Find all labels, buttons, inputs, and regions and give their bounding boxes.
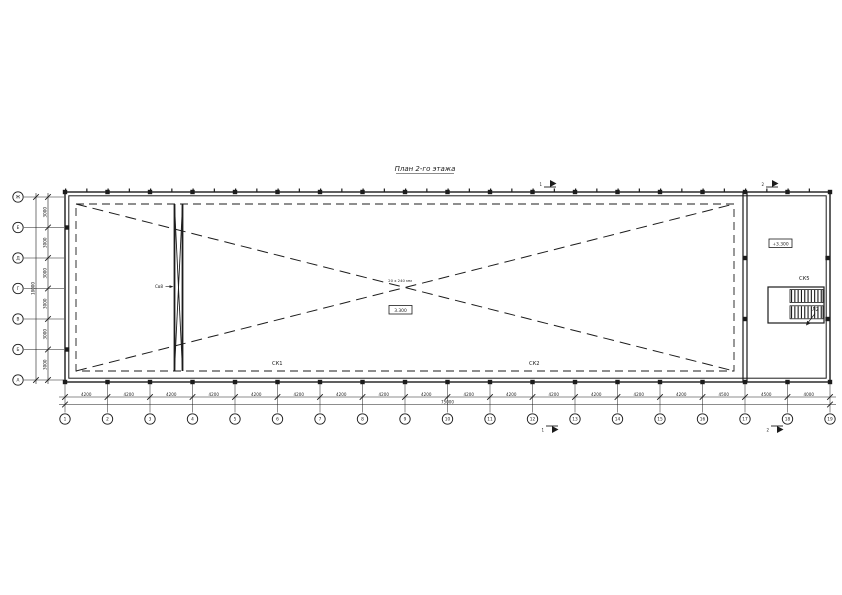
grid-bubble-label: А: [17, 378, 20, 384]
column-mark: [148, 190, 152, 194]
column-mark: [105, 190, 109, 194]
section-marker: 2: [761, 180, 778, 187]
column-mark: [825, 256, 829, 260]
grid-bubble-label: 18: [785, 417, 791, 423]
stair-elevation-value: +3.300: [772, 241, 788, 247]
dim-label: 3000: [43, 237, 48, 248]
dim-label: 3000: [43, 329, 48, 340]
dim-label: 4200: [464, 392, 475, 397]
dim-label: 4200: [166, 392, 177, 397]
grid-bubble-label: 19: [827, 417, 833, 423]
dim-label: 4200: [549, 392, 560, 397]
grid-bubble-label: 7: [319, 417, 322, 423]
dim-label: 4200: [124, 392, 135, 397]
column-mark: [530, 380, 534, 384]
column-mark: [700, 380, 704, 384]
section-marker: 1: [539, 180, 556, 187]
grid-bubble-label: 6: [276, 417, 279, 423]
section-number: 1: [541, 428, 544, 433]
dim-label: 4500: [761, 392, 772, 397]
column-mark: [148, 380, 152, 384]
column-mark: [825, 317, 829, 321]
grid-bubble-label: 15: [657, 417, 663, 423]
dim-label: 4200: [676, 392, 687, 397]
column-mark: [65, 225, 69, 229]
dim-label: 4200: [634, 392, 645, 397]
grid-bubble-label: 10: [445, 417, 451, 423]
column-mark: [318, 190, 322, 194]
column-mark: [190, 190, 194, 194]
grid-bubble-label: 12: [530, 417, 536, 423]
section-number: 2: [766, 428, 769, 433]
column-mark: [63, 380, 67, 384]
column-mark: [318, 380, 322, 384]
drawing-title: План 2-го этажа: [395, 165, 456, 173]
section-flag-icon: [552, 426, 559, 433]
column-mark: [403, 380, 407, 384]
column-mark: [573, 190, 577, 194]
truss-label-ck2: СК2: [529, 361, 540, 367]
center-note: 20 х 240 мм: [388, 278, 412, 283]
grid-bubble-label: 11: [487, 417, 493, 423]
dim-label: 4200: [81, 392, 92, 397]
grid-bubble-label: 17: [742, 417, 748, 423]
dim-label: 3000: [43, 268, 48, 279]
column-mark: [65, 347, 69, 351]
grid-bubble-label: 16: [700, 417, 706, 423]
dim-label: 4500: [719, 392, 730, 397]
column-mark: [743, 190, 747, 194]
column-mark: [573, 380, 577, 384]
column-mark: [360, 190, 364, 194]
dim-label: 4200: [251, 392, 262, 397]
column-mark: [275, 380, 279, 384]
section-number: 2: [761, 182, 764, 187]
drawing-canvas: План 2-го этажа Св8 СК1 СК2 СК5 20 х 240…: [0, 0, 842, 595]
column-mark: [360, 380, 364, 384]
floor-plan-drawing: План 2-го этажа Св8 СК1 СК2 СК5 20 х 240…: [0, 0, 842, 595]
grid-bubble-label: 13: [572, 417, 578, 423]
bottom-grid: 1420024200342004420054200642007420084200…: [60, 190, 835, 424]
column-mark: [658, 190, 662, 194]
section-number: 1: [539, 182, 542, 187]
column-mark: [785, 190, 789, 194]
column-mark: [828, 380, 832, 384]
grid-bubble-label: Г: [17, 286, 20, 292]
section-marker: 2: [766, 426, 783, 433]
column-mark: [700, 190, 704, 194]
column-mark: [105, 380, 109, 384]
column-mark: [828, 190, 832, 194]
dim-label: 4200: [506, 392, 517, 397]
column-mark: [785, 380, 789, 384]
dim-label: 3000: [43, 359, 48, 370]
column-mark: [488, 380, 492, 384]
dim-label: 4200: [591, 392, 602, 397]
grid-bubble-label: 14: [615, 417, 621, 423]
grid-bubble-label: В: [17, 317, 20, 323]
outer-wall: [65, 192, 830, 382]
grid-bubble-label: 2: [106, 417, 109, 423]
brace-leader-arrow-icon: [170, 285, 174, 288]
dim-label: 3000: [43, 207, 48, 218]
column-mark: [743, 256, 747, 260]
column-mark: [445, 190, 449, 194]
column-mark: [615, 380, 619, 384]
truss-label-ck5: СК5: [799, 276, 810, 282]
column-mark: [403, 190, 407, 194]
dim-label: 4000: [804, 392, 815, 397]
dim-label: 4200: [421, 392, 432, 397]
grid-bubble-label: 3: [149, 417, 152, 423]
column-mark: [63, 190, 67, 194]
section-flag-icon: [772, 180, 779, 187]
grid-bubble-label: 1: [64, 417, 67, 423]
section-flag-icon: [550, 180, 557, 187]
column-mark: [233, 380, 237, 384]
stair-label: Л2: [812, 307, 819, 313]
column-mark: [743, 380, 747, 384]
dim-label: 4200: [209, 392, 220, 397]
center-elevation-value: 3.300: [394, 308, 407, 314]
grid-bubble-label: Е: [17, 225, 20, 231]
grid-bubble-label: Ж: [16, 195, 21, 201]
column-mark: [233, 190, 237, 194]
truss-label-ck1: СК1: [272, 361, 283, 367]
column-mark: [275, 190, 279, 194]
section-marker: 1: [541, 426, 558, 433]
dim-label: 4200: [379, 392, 390, 397]
column-mark: [488, 190, 492, 194]
column-mark: [658, 380, 662, 384]
grid-bubble-label: 5: [234, 417, 237, 423]
grid-bubble-label: 4: [191, 417, 194, 423]
column-mark: [743, 317, 747, 321]
brace-label: Св8: [155, 284, 163, 289]
dim-label: 4200: [336, 392, 347, 397]
stair-enclosure: [768, 287, 824, 323]
column-mark: [190, 380, 194, 384]
stair-leader-arrow-icon: [806, 321, 811, 326]
column-mark: [445, 380, 449, 384]
grid-bubble-label: Б: [17, 347, 20, 353]
grid-bubble-label: 9: [404, 417, 407, 423]
dim-label: 3000: [43, 298, 48, 309]
column-mark: [530, 190, 534, 194]
section-flag-icon: [777, 426, 784, 433]
dim-label: 4200: [294, 392, 305, 397]
grid-bubble-label: 8: [361, 417, 364, 423]
column-mark: [615, 190, 619, 194]
